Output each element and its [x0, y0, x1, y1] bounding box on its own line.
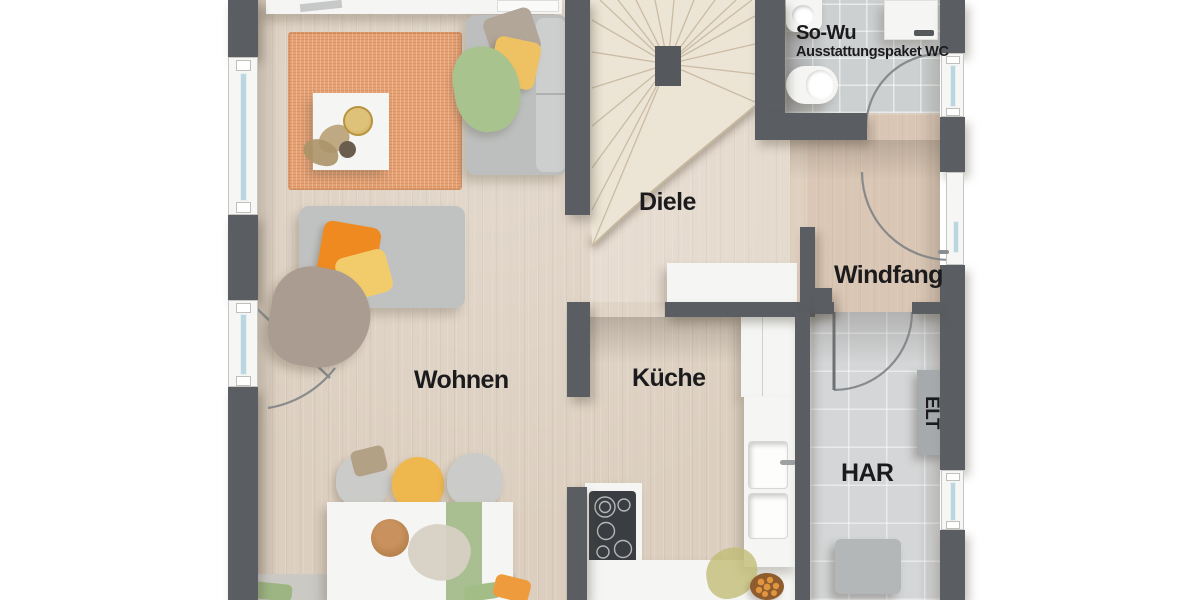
- wall-wc-bottom: [755, 113, 867, 140]
- wc-package-title: So-Wu: [796, 22, 856, 45]
- wc-door-arc: [866, 54, 940, 128]
- entrance-door-arc: [862, 172, 950, 260]
- table-bowl: [371, 519, 409, 557]
- room-label-elt: ELT: [889, 398, 974, 427]
- entrance-door-handle: [938, 250, 949, 254]
- wc-package-subtitle: Ausstattungspaket WC: [796, 44, 949, 60]
- terrace-door: [228, 300, 258, 387]
- wall-windfang-har-a: [815, 302, 834, 314]
- kitchen-tall-cabinet: [741, 313, 798, 397]
- terrace-door-glass: [240, 314, 247, 375]
- wall-kueche-top: [665, 302, 815, 317]
- wall-wohnen-stairs: [565, 0, 590, 215]
- wall-wohnen-kueche-b: [567, 487, 587, 600]
- sink-faucet: [780, 460, 796, 465]
- diele-console: [667, 263, 797, 302]
- window-har: [941, 470, 964, 530]
- sink-basin-1: [748, 441, 788, 489]
- room-label-diele: Diele: [639, 188, 696, 217]
- entrance-door-glass: [953, 221, 959, 253]
- window-cap: [946, 108, 960, 116]
- wall-left-a: [228, 0, 258, 57]
- har-appliance: [835, 539, 901, 594]
- water-heater-vent: [914, 30, 934, 36]
- wall-right-b: [940, 117, 965, 172]
- window-cap: [946, 473, 960, 481]
- window-cap: [236, 376, 251, 386]
- window-wohnen-top: [228, 57, 258, 215]
- dining-chair-right: [447, 453, 503, 507]
- wall-left-c: [228, 387, 258, 600]
- room-label-har: HAR: [841, 459, 893, 488]
- window-cap: [946, 521, 960, 529]
- window-glass: [950, 482, 956, 521]
- window-wc: [941, 53, 964, 117]
- cooktop-burners: [589, 491, 636, 565]
- wc-toilet-lid: [806, 70, 834, 100]
- wall-right-c: [940, 265, 965, 470]
- floorplan-canvas: Wohnen Küche Diele Windfang HAR ELT So-W…: [0, 0, 1200, 600]
- window-cap: [236, 202, 251, 213]
- gold-tray: [343, 106, 373, 136]
- wall-right-d: [940, 530, 965, 600]
- vase: [339, 141, 356, 158]
- window-cap: [236, 60, 251, 71]
- window-glass: [240, 73, 247, 201]
- room-label-kueche: Küche: [632, 364, 705, 393]
- sink-basin-2: [748, 493, 788, 539]
- har-door-arc: [834, 312, 912, 390]
- stair-newel-post: [655, 46, 681, 86]
- room-label-windfang: Windfang: [834, 261, 943, 290]
- room-label-wohnen: Wohnen: [414, 366, 509, 395]
- fruit-bowl-fruits: [750, 573, 784, 600]
- window-cap: [236, 303, 251, 313]
- wall-kueche-har: [795, 312, 810, 600]
- tall-cabinet-seam: [762, 314, 763, 396]
- wall-windfang-har-b: [912, 302, 940, 314]
- window-glass: [950, 65, 956, 107]
- sofa-cushion-divider: [536, 93, 566, 95]
- wall-wc-left: [755, 0, 785, 113]
- wall-left-b: [228, 215, 258, 300]
- wall-wohnen-kueche-a: [567, 302, 590, 397]
